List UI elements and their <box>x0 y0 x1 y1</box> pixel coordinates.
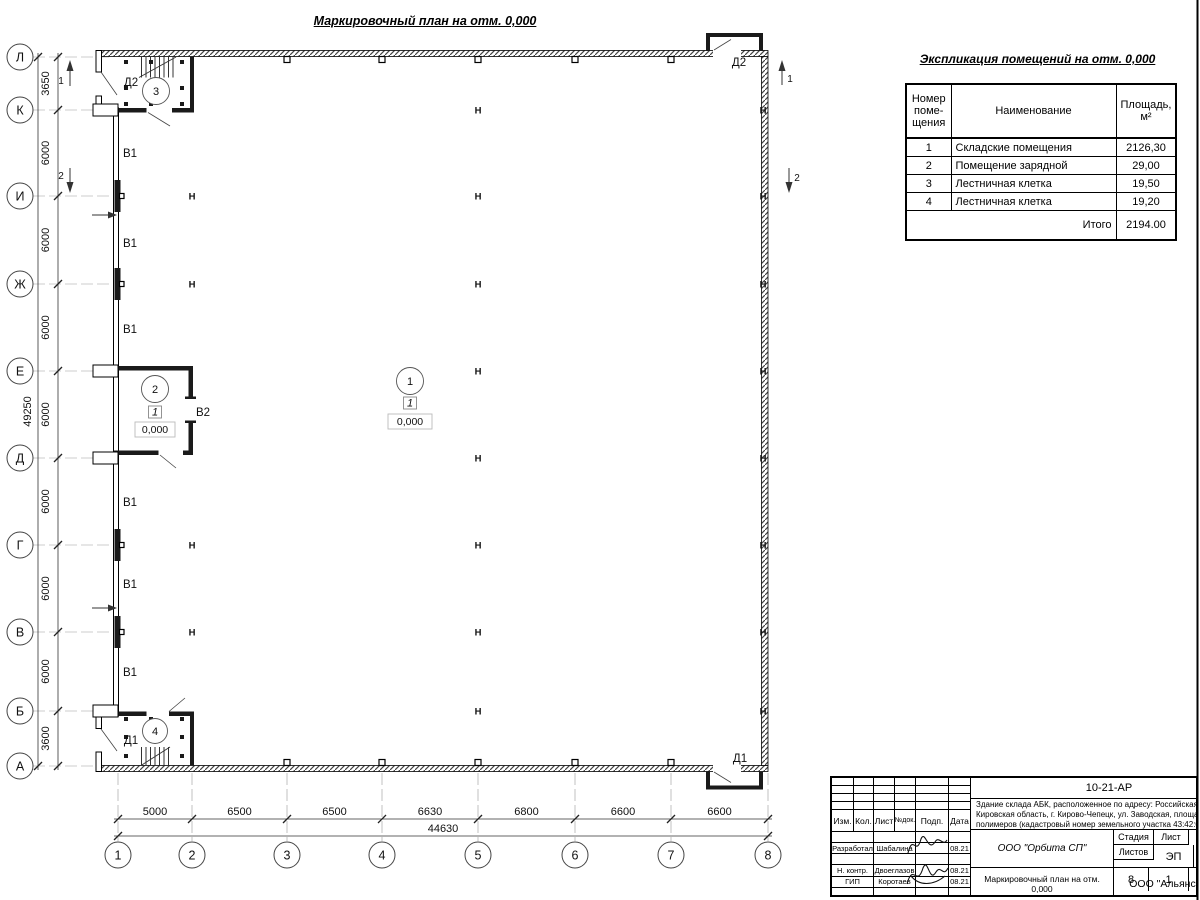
axis-label: Л <box>16 51 24 65</box>
column-mark: Н <box>475 707 482 718</box>
column-mark: Н <box>475 192 482 203</box>
header-ndok: №док. <box>895 810 916 832</box>
gate-b1-label: В1 <box>123 667 137 679</box>
dim: 6000 <box>40 228 52 252</box>
bottom-axis-bubbles: 1 2 3 4 5 6 7 8 <box>105 842 781 868</box>
dim: 6600 <box>611 806 635 818</box>
column-mark: Н <box>189 280 196 291</box>
col-header-name: Наименование <box>951 84 1116 138</box>
column-mark: Н <box>760 707 767 718</box>
dim: 6000 <box>40 659 52 683</box>
date-gip: 08.21 <box>949 877 971 888</box>
level-mark: 0,000 <box>142 424 168 436</box>
sheets-label: Листов <box>1114 845 1154 860</box>
column-mark: Н <box>475 628 482 639</box>
room-name: Лестничная клетка <box>951 193 1116 211</box>
title-block: Изм. Кол. Лист №док. Подп. Дата Разработ… <box>830 776 1198 897</box>
company-name: ООО "Альянс <box>1114 868 1198 897</box>
room-area: 29,00 <box>1116 157 1176 175</box>
column-mark: Н <box>760 454 767 465</box>
dim: 6000 <box>40 402 52 426</box>
wall-column-squares <box>284 57 674 766</box>
dim: 5000 <box>143 806 167 818</box>
drawing-sheet: Н Н Н Н Н Н Н Н Н Н Н Н Н Н Н Н Н Н Н Н … <box>0 0 1200 900</box>
address-line: полимеров (кадастровый номер земельного … <box>976 820 1198 830</box>
table-row: 1 Складские помещения 2126,30 <box>906 138 1176 157</box>
axis-label: 4 <box>379 849 386 863</box>
explication-title: Экспликация помещений на отм. 0,000 <box>903 52 1172 66</box>
axis-label: Е <box>16 365 24 379</box>
axis-label: И <box>16 190 25 204</box>
header-podp: Подп. <box>916 810 949 832</box>
design-org: ООО "Орбита СП" <box>971 830 1114 867</box>
header-kol: Кол. <box>854 810 874 832</box>
door-d2-label: Д2 <box>124 77 138 89</box>
section-2-label: 2 <box>58 171 64 182</box>
sheet-title-line: Маркировочный план на отм. <box>984 874 1100 884</box>
column-mark: Н <box>475 541 482 552</box>
table-total-row: Итого 2194.00 <box>906 211 1176 241</box>
column-mark: Н <box>189 192 196 203</box>
document-number: 10-21-АР <box>971 778 1198 799</box>
room-num: 4 <box>906 193 951 211</box>
axis-label: Б <box>16 705 24 719</box>
opening-labels: В1 В1 В1 В1 В1 В1 В2 Д2 Д2 Д1 Д1 <box>123 57 747 765</box>
room-name: Помещение зарядной <box>951 157 1116 175</box>
role-developer: Разработал <box>832 843 874 854</box>
signature-gip <box>903 858 951 892</box>
dim: 6000 <box>40 315 52 339</box>
header-izm: Изм. <box>832 810 854 832</box>
room-num: 1 <box>906 138 951 157</box>
dim: 6000 <box>40 576 52 600</box>
dim: 6630 <box>418 806 442 818</box>
total-label: Итого <box>906 211 1116 241</box>
dim: 6800 <box>514 806 538 818</box>
dim: 6500 <box>227 806 251 818</box>
left-dimensions: 3650 6000 6000 6000 6000 6000 6000 6000 … <box>22 53 62 770</box>
address-line: Здание склада АБК, расположенное по адре… <box>976 800 1198 810</box>
room-area: 2126,30 <box>1116 138 1176 157</box>
column-mark: Н <box>760 367 767 378</box>
dim-total: 44630 <box>428 823 459 835</box>
room-area: 19,20 <box>1116 193 1176 211</box>
column-mark: Н <box>189 541 196 552</box>
floor-type-mark: 1 <box>152 407 158 419</box>
door-d2-label: Д2 <box>732 57 746 69</box>
column-mark: Н <box>475 367 482 378</box>
axis-label: 7 <box>668 849 675 863</box>
section-2-label: 2 <box>794 173 800 184</box>
stage-sheet-table: Стадия Лист Листов ЭП 8 1 <box>1114 830 1198 867</box>
gate-b2-label: В2 <box>196 407 210 419</box>
axis-label: В <box>16 626 24 640</box>
gate-b1-label: В1 <box>123 497 137 509</box>
axis-label: К <box>16 104 24 118</box>
gate-b1-label: В1 <box>123 579 137 591</box>
column-mark: Н <box>475 280 482 291</box>
room-number: 4 <box>152 726 158 738</box>
total-value: 2194.00 <box>1116 211 1176 241</box>
bottom-dimensions: 5000 6500 6500 6630 6800 6600 6600 44630 <box>114 806 772 840</box>
axis-label: Д <box>16 452 25 466</box>
axis-label: 8 <box>765 849 772 863</box>
axis-extension-lines <box>33 57 768 841</box>
title-block-revision-grid: Изм. Кол. Лист №док. Подп. Дата <box>832 778 971 832</box>
role-ncontrol: Н. контр. <box>832 865 874 876</box>
sheet-title: Маркировочный план на отм. 0,000 <box>971 868 1114 897</box>
floor-type-mark: 1 <box>407 398 413 410</box>
dim: 3650 <box>40 71 52 95</box>
table-row: 4 Лестничная клетка 19,20 <box>906 193 1176 211</box>
level-mark: 0,000 <box>397 416 423 428</box>
axis-label: Г <box>17 539 24 553</box>
sheet-title-line: 0,000 <box>1031 884 1052 894</box>
room-number: 2 <box>152 384 158 396</box>
column-mark: Н <box>475 106 482 117</box>
door-d1-label: Д1 <box>124 735 138 747</box>
role-gip: ГИП <box>832 877 874 888</box>
section-1-label: 1 <box>58 76 64 87</box>
dim: 6000 <box>40 141 52 165</box>
section-marks: 1 1 2 2 <box>58 60 800 193</box>
gate-b1-label: В1 <box>123 238 137 250</box>
axis-label: Ж <box>14 278 26 292</box>
room-num: 2 <box>906 157 951 175</box>
axis-label: 6 <box>572 849 579 863</box>
column-mark: Н <box>760 280 767 291</box>
column-mark: Н <box>760 628 767 639</box>
room-name: Складские помещения <box>951 138 1116 157</box>
axis-label: 2 <box>189 849 196 863</box>
dim: 6000 <box>40 489 52 513</box>
stage-label: Стадия <box>1114 830 1154 845</box>
dim: 6600 <box>707 806 731 818</box>
stage-value: ЭП <box>1154 845 1194 868</box>
room-markers: 1 1 0,000 2 1 0,000 3 4 <box>135 78 432 744</box>
dim-total: 49250 <box>22 396 34 427</box>
project-address: Здание склада АБК, расположенное по адре… <box>971 799 1198 830</box>
room-number: 3 <box>153 86 159 98</box>
section-1-label: 1 <box>787 74 793 85</box>
column-mark: Н <box>475 454 482 465</box>
axis-label: 5 <box>475 849 482 863</box>
axis-label: 3 <box>284 849 291 863</box>
door-d1-label: Д1 <box>733 753 747 765</box>
sheet-label: Лист <box>1154 830 1189 845</box>
date-developer: 08.21 <box>949 843 971 854</box>
table-row: 3 Лестничная клетка 19,50 <box>906 175 1176 193</box>
table-row: 2 Помещение зарядной 29,00 <box>906 157 1176 175</box>
column-mark: Н <box>760 541 767 552</box>
room-number: 1 <box>407 376 413 388</box>
header-list: Лист <box>874 810 895 832</box>
room-name: Лестничная клетка <box>951 175 1116 193</box>
axis-label: А <box>16 760 25 774</box>
room-area: 19,50 <box>1116 175 1176 193</box>
header-data: Дата <box>949 810 971 832</box>
gate-b1-label: В1 <box>123 148 137 160</box>
column-marks: Н Н Н Н Н Н Н Н Н Н Н Н Н Н Н Н Н Н Н Н <box>189 106 767 718</box>
gate-b1-label: В1 <box>123 324 137 336</box>
axis-label: 1 <box>115 849 122 863</box>
col-header-area: Площадь, м² <box>1116 84 1176 138</box>
address-line: Кировская область, г. Кирово-Чепецк, ул.… <box>976 810 1198 820</box>
dim: 3600 <box>40 726 52 750</box>
date-ncontrol: 08.21 <box>949 865 971 876</box>
drawing-title: Маркировочный план на отм. 0,000 <box>270 14 580 28</box>
column-mark: Н <box>189 628 196 639</box>
title-block-right: 10-21-АР Здание склада АБК, расположенно… <box>971 778 1198 897</box>
explication-table: Номер поме- щения Наименование Площадь, … <box>905 83 1177 241</box>
dim: 6500 <box>322 806 346 818</box>
column-mark: Н <box>760 192 767 203</box>
col-header-number: Номер поме- щения <box>906 84 951 138</box>
column-mark: Н <box>760 106 767 117</box>
room-num: 3 <box>906 175 951 193</box>
signature-developer <box>905 831 950 859</box>
